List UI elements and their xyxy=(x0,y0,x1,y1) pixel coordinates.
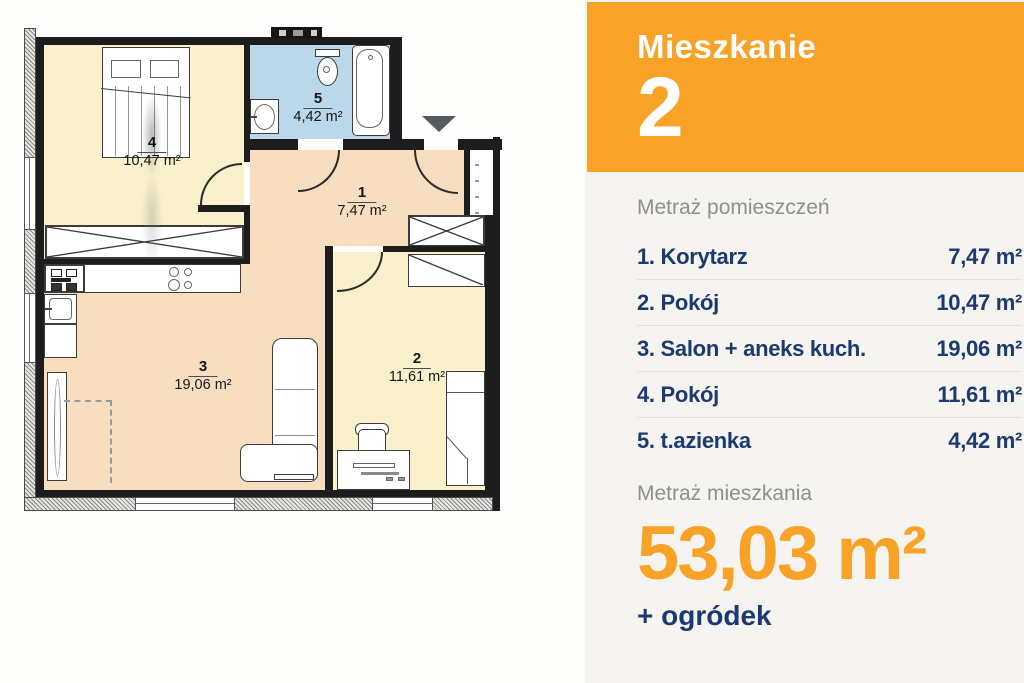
oven-cell xyxy=(66,269,77,277)
bathtub-basin xyxy=(356,49,383,128)
room-name: 4. Pokój xyxy=(637,382,719,408)
cabinet-door-leaf xyxy=(54,379,61,476)
room-label-2: 2 11,61 m² xyxy=(389,351,445,385)
room-area: 4,42 m² xyxy=(948,428,1022,454)
kitchen-cabinet xyxy=(44,324,77,358)
room-list-header: Metraż pomieszczeń xyxy=(637,196,1022,220)
room-row: 3. Salon + aneks kuch. 19,06 m² xyxy=(637,326,1022,372)
vent-slit xyxy=(293,30,303,36)
window xyxy=(135,497,235,511)
apartment-number: 2 xyxy=(637,68,1024,148)
pillow xyxy=(111,60,141,78)
wall-room4-lower xyxy=(244,205,250,264)
wall-salon-room2 xyxy=(325,246,333,497)
room-row: 4. Pokój 11,61 m² xyxy=(637,372,1022,418)
toilet-drain xyxy=(323,66,330,73)
sink-tap xyxy=(45,308,52,310)
wall-left-inner xyxy=(36,37,44,497)
wall-bottom-inner xyxy=(36,490,487,497)
wall-entry-left xyxy=(402,139,424,150)
vent-slit xyxy=(311,30,317,36)
wall-right-main xyxy=(485,215,500,511)
closet-diagonal-icon xyxy=(409,255,483,285)
room-label-4: 4 10,47 m² xyxy=(123,135,180,169)
oven-cell xyxy=(51,269,62,277)
room-row: 1. Korytarz 7,47 m² xyxy=(637,234,1022,280)
window xyxy=(24,293,36,363)
chimney-vent xyxy=(271,27,322,39)
entrance-arrow-icon xyxy=(422,116,456,132)
room-name: 3. Salon + aneks kuch. xyxy=(637,336,866,362)
room-list: Metraż pomieszczeń 1. Korytarz 7,47 m² 2… xyxy=(637,196,1022,463)
washbasin-bowl xyxy=(254,104,275,130)
room-area: 7,47 m² xyxy=(948,244,1022,270)
wall-bath-bottom-right xyxy=(343,139,390,150)
room-area: 19,06 m² xyxy=(936,336,1022,362)
toilet-bowl xyxy=(317,57,338,86)
oven-bar xyxy=(51,278,71,282)
burner xyxy=(184,281,192,289)
blanket-edge xyxy=(467,458,468,484)
blanket-fold xyxy=(446,436,467,459)
bed-single xyxy=(446,371,485,486)
total-area: 53,03 m² xyxy=(637,516,1022,592)
wall-kitchen-top xyxy=(36,259,250,264)
burner xyxy=(184,268,192,276)
room-label-1: 1 7,47 m² xyxy=(337,185,386,219)
oven-cell xyxy=(66,283,77,291)
burner xyxy=(169,267,179,277)
room-2-closet xyxy=(408,254,485,287)
mouse xyxy=(398,477,405,481)
mouse xyxy=(386,477,393,481)
keyboard-bar xyxy=(361,472,399,475)
corridor-wardrobe xyxy=(408,215,485,247)
oven-unit xyxy=(44,264,85,293)
burner xyxy=(168,279,180,291)
keyboard xyxy=(353,463,395,468)
sofa-foot xyxy=(274,474,314,480)
room-row: 5. t.azienka 4,42 m² xyxy=(637,418,1022,463)
washbasin-tap xyxy=(251,116,257,118)
floorplan: 4 10,47 m² 5 4,42 m² 1 7,47 m² 3 19,06 m… xyxy=(0,0,585,683)
pillow-line xyxy=(447,392,484,393)
total-extra: + ogródek xyxy=(637,600,1022,632)
room-name: 2. Pokój xyxy=(637,290,719,316)
totals-section: Metraż mieszkania 53,03 m² + ogródek xyxy=(637,482,1022,632)
toilet-tank xyxy=(315,49,340,57)
room-area: 11,61 m² xyxy=(938,382,1022,408)
total-header: Metraż mieszkania xyxy=(637,482,1022,506)
wardrobe-x-icon xyxy=(410,217,483,245)
apartment-title: Mieszkanie xyxy=(637,28,1024,66)
window xyxy=(372,497,433,511)
corridor-floor xyxy=(250,246,325,264)
room-area: 10,47 m² xyxy=(936,290,1022,316)
kitchen-sink-unit xyxy=(44,294,77,324)
room-row: 2. Pokój 10,47 m² xyxy=(637,280,1022,326)
apartment-card: Mieszkanie 2 xyxy=(587,2,1024,172)
sink-bowl xyxy=(49,298,72,320)
exterior-wall-left xyxy=(24,28,36,511)
wall-bath-bottom-left xyxy=(250,139,298,150)
window xyxy=(24,157,36,230)
oven-cell xyxy=(51,283,62,291)
vent-slit xyxy=(279,30,286,36)
wall-bath-right xyxy=(390,37,402,150)
wall-right-outer-top xyxy=(493,137,500,215)
room-label-3: 3 19,06 m² xyxy=(174,359,231,393)
room-name: 5. t.azienka xyxy=(637,428,751,454)
pillow xyxy=(150,60,179,78)
bathtub xyxy=(352,45,390,136)
label-smudge xyxy=(120,85,184,265)
bathtub-drain xyxy=(368,55,373,60)
washbasin-counter xyxy=(250,99,279,134)
sofa-seam xyxy=(275,435,315,436)
carpet-dashed-outline xyxy=(64,400,112,483)
sofa-seam xyxy=(275,389,315,390)
wall-right-cavity xyxy=(470,150,493,215)
wall-room2-top xyxy=(383,246,487,252)
desk xyxy=(337,450,410,490)
wall-top xyxy=(28,37,402,45)
stove xyxy=(166,264,199,293)
info-panel: Mieszkanie 2 Metraż pomieszczeń 1. Koryt… xyxy=(585,0,1024,683)
room-name: 1. Korytarz xyxy=(637,244,747,270)
room-label-5: 5 4,42 m² xyxy=(293,91,342,125)
wall-room4-stub xyxy=(198,205,250,212)
